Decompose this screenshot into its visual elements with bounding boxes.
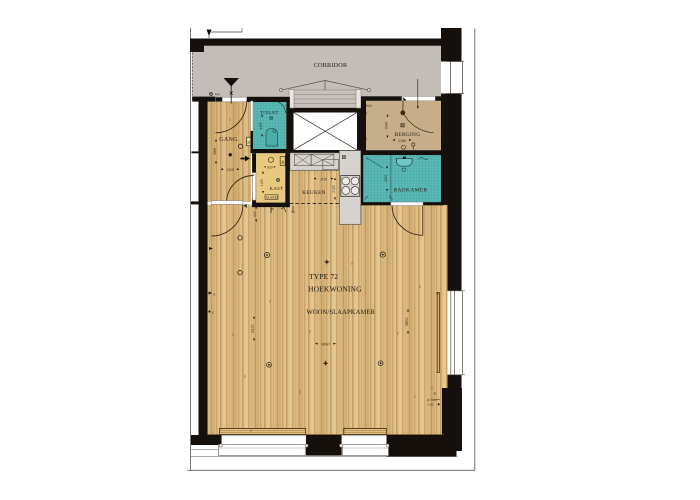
svg-text:T: T — [212, 311, 214, 315]
svg-text:6950: 6950 — [322, 341, 330, 346]
svg-text:6855: 6855 — [404, 318, 409, 326]
svg-text:6155: 6155 — [250, 325, 255, 333]
svg-text:GANG: GANG — [219, 137, 238, 143]
svg-text:2340: 2340 — [398, 139, 406, 143]
svg-text:WD: WD — [366, 104, 372, 108]
svg-text:2125: 2125 — [332, 185, 336, 193]
svg-text:1495: 1495 — [259, 122, 263, 129]
svg-text:CAI: CAI — [428, 403, 434, 407]
svg-text:KEUKEN: KEUKEN — [302, 190, 326, 196]
svg-text:2130: 2130 — [320, 177, 328, 181]
svg-text:30: 30 — [433, 392, 437, 396]
svg-text:1350: 1350 — [226, 168, 234, 172]
svg-text:E: E — [214, 293, 216, 297]
svg-text:2025: 2025 — [384, 175, 388, 183]
svg-text:BADKAMER: BADKAMER — [393, 188, 427, 194]
svg-text:KAST: KAST — [270, 186, 284, 192]
svg-text:920: 920 — [267, 165, 273, 169]
svg-text:ALARM: ALARM — [265, 196, 277, 200]
svg-text:1455: 1455 — [260, 179, 264, 186]
svg-text:CORRIDOR: CORRIDOR — [314, 62, 348, 69]
svg-text:WOON/SLAAPKAMER: WOON/SLAAPKAMER — [307, 309, 376, 316]
svg-text:600: 600 — [253, 211, 257, 217]
svg-text:HOEKWONING: HOEKWONING — [308, 285, 362, 294]
svg-text:TYPE 72: TYPE 72 — [309, 272, 338, 281]
svg-text:BERGING: BERGING — [395, 132, 421, 138]
svg-text:30: 30 — [436, 292, 440, 296]
svg-text:1500: 1500 — [385, 122, 389, 130]
svg-text:WC: WC — [215, 92, 221, 96]
svg-text:3000: 3000 — [213, 148, 217, 156]
svg-text:TOILET: TOILET — [260, 110, 278, 115]
